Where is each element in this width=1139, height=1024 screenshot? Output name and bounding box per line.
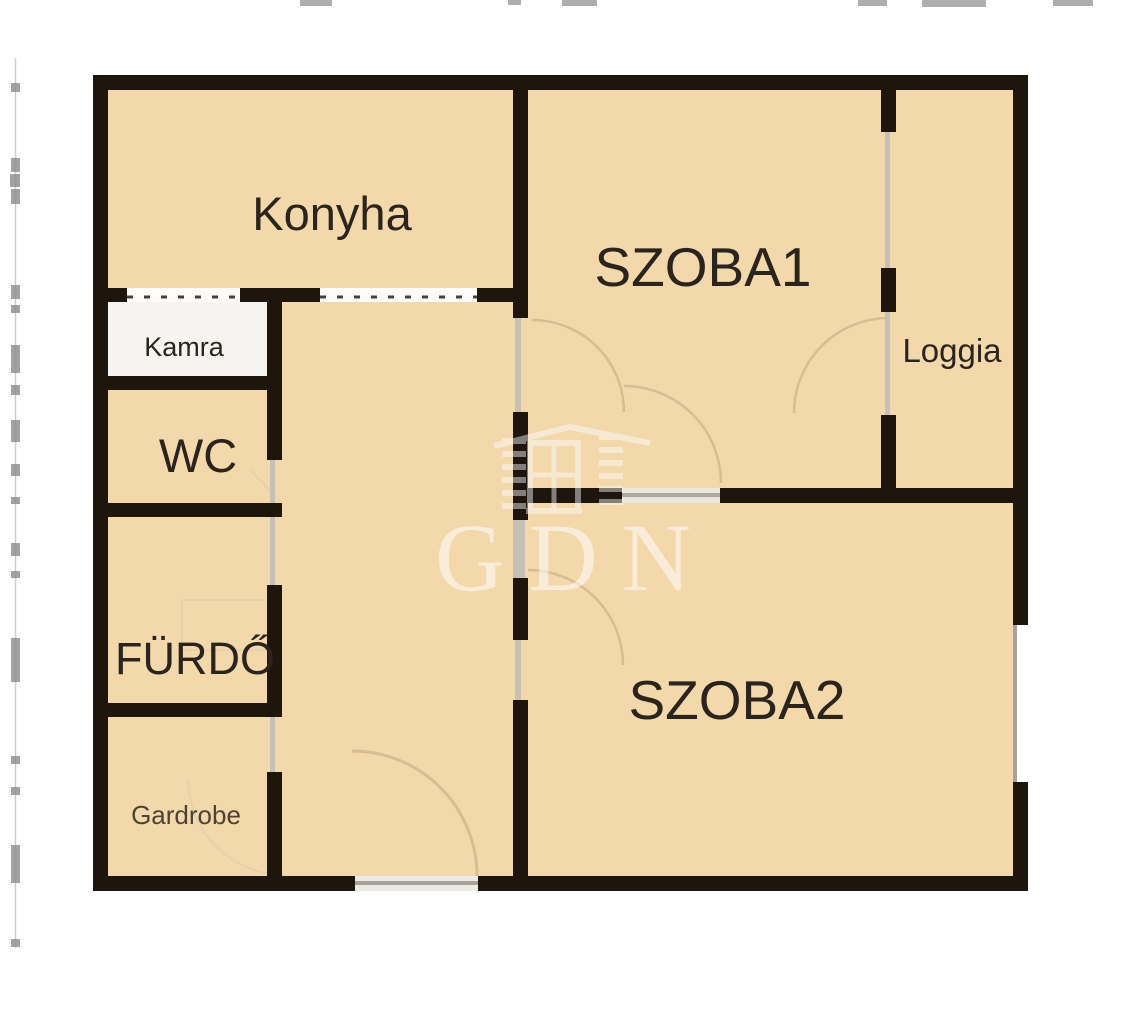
wc-door-leaf xyxy=(270,460,275,505)
wall-konyha-bottom-a xyxy=(93,288,127,302)
wall-wc-right xyxy=(267,390,282,460)
wall-szoba-divider-right xyxy=(720,488,1028,503)
wall-kamra-bottom xyxy=(93,376,282,390)
wall-loggia-3 xyxy=(881,415,896,490)
wall-central-4 xyxy=(513,700,528,876)
floorplan-svg: GDN Konyha Kamra WC FÜRDŐ Gardrobe SZOBA… xyxy=(0,0,1139,1024)
room-label-konyha: Konyha xyxy=(252,187,412,240)
wall-outer-right-upper xyxy=(1013,75,1028,625)
wall-wc-bottom xyxy=(93,503,282,517)
wall-kamra-right xyxy=(267,288,282,390)
szoba2-door-leaf xyxy=(515,640,521,700)
wall-outer-bottom-left xyxy=(93,876,355,891)
dimension-fragments-top xyxy=(300,0,1093,7)
watermark-text: GDN xyxy=(435,504,715,611)
room-label-szoba1: SZOBA1 xyxy=(594,236,811,298)
wall-gardrobe-right xyxy=(267,772,282,876)
konyha-opening xyxy=(320,288,477,302)
kamra-opening xyxy=(127,288,240,302)
room-label-kamra: Kamra xyxy=(144,332,225,362)
wall-outer-bottom-right xyxy=(478,876,1028,891)
gardrobe-door-leaf xyxy=(270,717,275,772)
wall-konyha-bottom-c xyxy=(477,288,528,302)
loggia-window-upper xyxy=(885,132,890,268)
room-label-loggia: Loggia xyxy=(902,332,1002,369)
room-label-szoba2: SZOBA2 xyxy=(628,669,845,731)
room-label-gardrobe: Gardrobe xyxy=(131,800,241,830)
szoba-divider-door-line xyxy=(622,493,720,497)
szoba2-window-line xyxy=(1013,625,1017,782)
dimension-ruler-left xyxy=(10,58,20,948)
wall-outer-right-lower xyxy=(1013,782,1028,891)
room-label-wc: WC xyxy=(159,429,237,482)
wall-furdo-bottom xyxy=(93,703,282,717)
wall-central-1 xyxy=(513,75,528,318)
loggia-window-lower xyxy=(885,312,890,415)
room-label-furdo: FÜRDŐ xyxy=(115,633,275,684)
entrance-door-line xyxy=(355,881,478,885)
wall-loggia-2 xyxy=(881,268,896,312)
furdo-door-leaf xyxy=(270,517,275,585)
wall-loggia-1 xyxy=(881,75,896,132)
floor-plan: GDN Konyha Kamra WC FÜRDŐ Gardrobe SZOBA… xyxy=(0,0,1139,1024)
szoba1-door-leaf xyxy=(515,318,521,412)
wall-outer-left xyxy=(93,75,108,891)
